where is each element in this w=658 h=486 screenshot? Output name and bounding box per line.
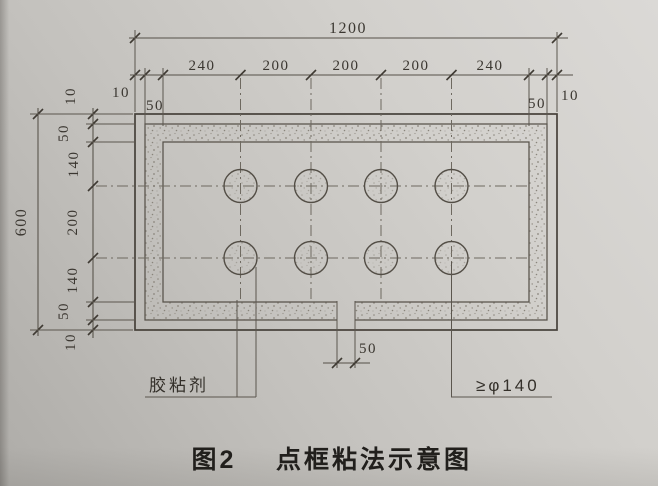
dim-top-seg-1: 240 — [189, 58, 216, 74]
adhesive-frame-band — [145, 124, 547, 320]
dim-top-seg-5: 240 — [477, 58, 504, 74]
dim-top-margin-left: 10 — [112, 85, 130, 101]
dim-top-margin-right: 10 — [561, 88, 579, 104]
band-inner-boundary — [163, 142, 529, 302]
adhesive-dot-r2c2 — [295, 242, 328, 275]
band-outer-boundary — [145, 124, 547, 320]
dim-left-seg-3: 140 — [66, 151, 82, 178]
adhesive-dot-r2c3 — [365, 242, 398, 275]
dim-top-total: 1200 — [329, 20, 367, 37]
adhesive-dot-r1c2 — [295, 170, 328, 203]
adhesive-dots — [224, 170, 468, 275]
dim-left-seg-2: 50 — [56, 124, 72, 142]
top-extension-lines — [135, 30, 557, 126]
figure-caption: 图2 点框粘法示意图 — [192, 445, 472, 474]
dim-left-seg-1: 10 — [63, 87, 79, 105]
dim-top-seg-3: 200 — [333, 58, 360, 74]
dim-top-band-left: 50 — [146, 98, 164, 114]
figure-caption-title: 点框粘法示意图 — [276, 445, 472, 474]
adhesive-dot-r1c3 — [365, 170, 398, 203]
left-extension-lines — [30, 114, 136, 330]
figure-caption-number: 图2 — [192, 446, 237, 474]
dim-left-seg-6: 50 — [56, 302, 72, 320]
dim-left-seg-7: 10 — [63, 333, 79, 351]
dim-top-seg-4: 200 — [403, 58, 430, 74]
dim-left-total: 600 — [13, 208, 30, 237]
photographed-page-background: 1200 240 200 200 200 240 10 50 50 10 600… — [0, 0, 658, 486]
label-adhesive: 胶粘剂 — [149, 376, 209, 395]
adhesive-dot-r1c1 — [224, 170, 257, 203]
adhesive-dot-r2c1 — [224, 242, 257, 275]
dim-bottom-gap-value: 50 — [359, 341, 377, 357]
figure-drawing: 1200 240 200 200 200 240 10 50 50 10 600… — [0, 0, 658, 486]
panel-outline — [135, 114, 557, 330]
dim-left-total-line — [33, 108, 43, 336]
adhesive-dot-r1c4 — [435, 170, 468, 203]
dim-top-band-right: 50 — [528, 96, 546, 112]
dim-left-seg-5: 140 — [65, 267, 81, 294]
dim-top-seg-2: 200 — [263, 58, 290, 74]
label-dot-diameter: ≥φ140 — [476, 376, 540, 395]
dim-left-seg-4: 200 — [65, 209, 81, 236]
